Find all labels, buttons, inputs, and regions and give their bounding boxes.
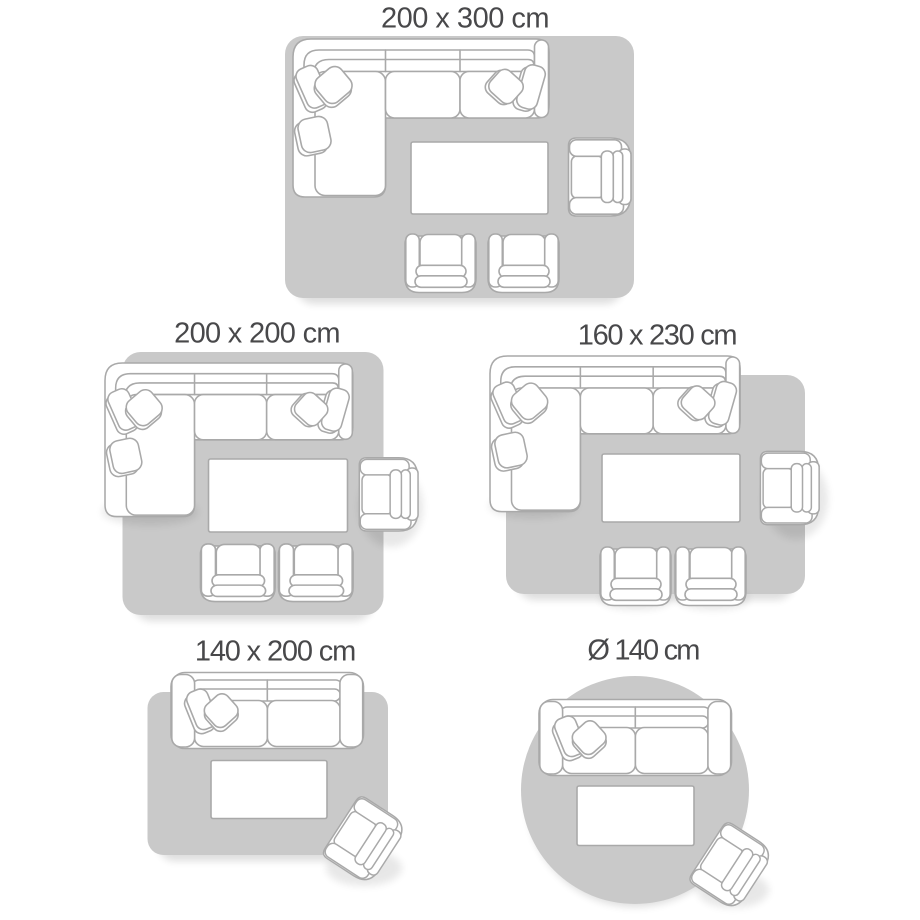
svg-text:200 x 300 cm: 200 x 300 cm xyxy=(381,3,549,35)
svg-text:160 x 230 cm: 160 x 230 cm xyxy=(578,320,737,352)
svg-text:140 x 200 cm: 140 x 200 cm xyxy=(195,636,355,668)
svg-text:Ø 140 cm: Ø 140 cm xyxy=(587,635,699,667)
svg-text:200 x 200 cm: 200 x 200 cm xyxy=(174,318,340,350)
